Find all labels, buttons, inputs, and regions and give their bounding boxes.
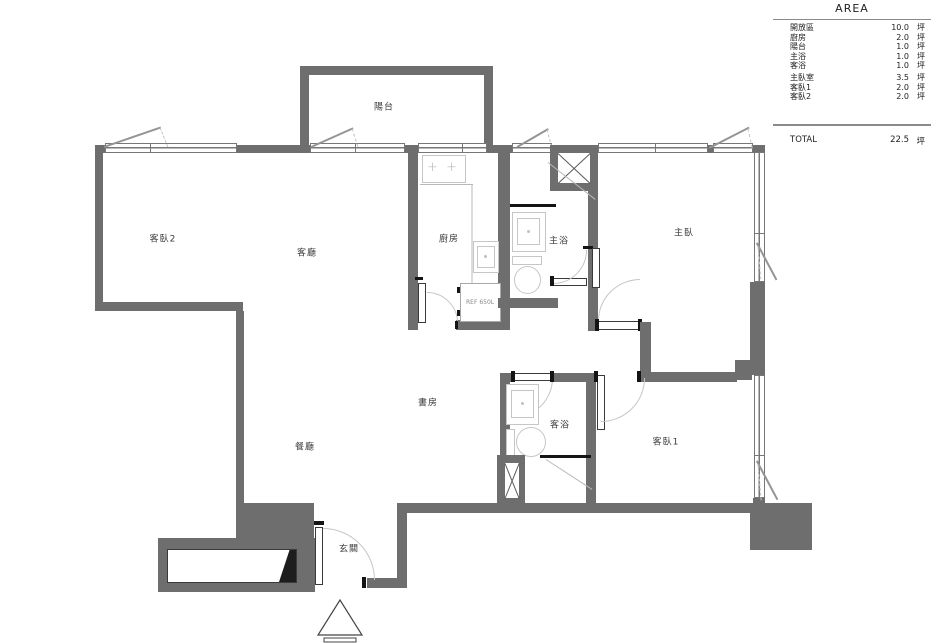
- row-value: 2.0: [873, 33, 909, 43]
- row-label: 陽台: [773, 42, 873, 52]
- area-table-title: AREA: [773, 2, 931, 15]
- table-row: 客臥12.0坪: [773, 83, 931, 93]
- wall-segment: [95, 302, 243, 311]
- wall-segment: [300, 66, 493, 75]
- area-table-rows: 開放區10.0坪 廚房2.0坪 陽台1.0坪 主浴1.0坪 客浴1.0坪 主臥室…: [773, 20, 931, 102]
- table-row: 客浴1.0坪: [773, 61, 931, 71]
- door-jamb-mark: [511, 371, 515, 382]
- wall-segment: [487, 145, 512, 153]
- row-unit: 坪: [909, 61, 931, 71]
- row-label: 客臥1: [773, 83, 873, 93]
- row-label: 主臥室: [773, 73, 873, 83]
- wall-segment: [735, 360, 752, 380]
- room-label-guest-bath: 客浴: [550, 418, 570, 431]
- window-mullion: [754, 233, 765, 234]
- door-jamb-mark: [595, 319, 599, 331]
- row-value: 2.0: [873, 83, 909, 93]
- row-unit: 坪: [909, 73, 931, 83]
- total-label: TOTAL: [773, 135, 873, 147]
- toilet-bowl: [516, 427, 546, 457]
- wall-segment: [484, 66, 493, 152]
- door-jamb-mark: [314, 521, 324, 525]
- door-swing-arc: [601, 378, 645, 422]
- room-label-living: 客廳: [297, 246, 317, 259]
- row-label: 客臥2: [773, 92, 873, 102]
- row-unit: 坪: [909, 33, 931, 43]
- door-swing-arc: [553, 250, 587, 284]
- fixture-mark: [457, 310, 460, 316]
- door-swing-arc: [598, 279, 640, 321]
- table-row: 主浴1.0坪: [773, 52, 931, 62]
- wall-block: [750, 503, 812, 550]
- sink-drain-icon: [527, 230, 530, 233]
- row-unit: 坪: [909, 23, 931, 33]
- wall-segment: [750, 282, 765, 375]
- stove-burner-icon: +: [446, 161, 457, 174]
- table-spacer: [773, 102, 931, 124]
- door-jamb-mark: [550, 276, 554, 286]
- row-unit: 坪: [909, 52, 931, 62]
- sink-drain-icon: [484, 255, 487, 258]
- window-mullion: [754, 455, 765, 456]
- room-label-study: 書房: [418, 396, 438, 409]
- room-label-master-bedroom: 主臥: [674, 226, 694, 239]
- window: [713, 143, 753, 153]
- row-value: 1.0: [873, 52, 909, 62]
- area-table: AREA 開放區10.0坪 廚房2.0坪 陽台1.0坪 主浴1.0坪 客浴1.0…: [773, 2, 931, 147]
- door-jamb-mark: [455, 321, 458, 329]
- floor-plan-canvas: AREA 開放區10.0坪 廚房2.0坪 陽台1.0坪 主浴1.0坪 客浴1.0…: [0, 0, 936, 643]
- window: [418, 143, 487, 153]
- wall-segment: [498, 298, 558, 308]
- wall-segment: [397, 503, 765, 513]
- wall-segment: [408, 320, 418, 330]
- north-arrow-icon: [314, 597, 366, 643]
- wall-segment: [586, 382, 596, 513]
- door-leaf: [418, 283, 426, 323]
- table-row: 陽台1.0坪: [773, 42, 931, 52]
- row-unit: 坪: [909, 83, 931, 93]
- wall-segment: [237, 145, 310, 153]
- door-jamb-mark: [550, 371, 554, 382]
- table-total-row: TOTAL 22.5 坪: [773, 128, 931, 147]
- wall-segment: [553, 373, 597, 382]
- door-leaf: [315, 527, 323, 585]
- window-mullion: [462, 143, 463, 153]
- row-value: 3.5: [873, 73, 909, 83]
- door-jamb-mark: [637, 371, 641, 382]
- window: [105, 143, 237, 153]
- table-row: 開放區10.0坪: [773, 23, 931, 33]
- shoe-cabinet: [167, 549, 297, 583]
- row-unit: 坪: [909, 92, 931, 102]
- shower-partition: [510, 204, 556, 207]
- total-value: 22.5: [873, 135, 909, 147]
- window: [598, 143, 708, 153]
- row-label: 廚房: [773, 33, 873, 43]
- stove-burner-icon: +: [427, 161, 438, 174]
- table-row: 客臥22.0坪: [773, 92, 931, 102]
- room-label-kitchen: 廚房: [439, 232, 459, 245]
- row-label: 開放區: [773, 23, 873, 33]
- row-label: 主浴: [773, 52, 873, 62]
- wall-segment: [397, 503, 407, 588]
- room-label-master-bath: 主浴: [549, 234, 569, 247]
- row-value: 10.0: [873, 23, 909, 33]
- toilet-tank: [506, 429, 515, 457]
- fixture-mark: [457, 287, 460, 293]
- door-jamb-mark: [415, 277, 423, 280]
- wall-segment: [95, 153, 103, 310]
- wall-segment: [408, 153, 418, 330]
- row-value: 1.0: [873, 42, 909, 52]
- room-label-bedroom2: 客臥2: [150, 232, 177, 245]
- wall-segment: [300, 66, 309, 152]
- room-label-bedroom1: 客臥1: [653, 435, 680, 448]
- door-jamb-mark: [594, 371, 598, 382]
- toilet-tank: [512, 256, 542, 265]
- room-label-dining: 餐廳: [295, 440, 315, 453]
- wall-segment: [640, 372, 737, 382]
- wall-segment: [405, 145, 418, 153]
- door-jamb-mark: [362, 577, 366, 588]
- room-label-entry: 玄關: [339, 542, 359, 555]
- toilet-bowl: [514, 266, 541, 294]
- sink-drain-icon: [521, 402, 524, 405]
- counter-edge: [420, 184, 473, 185]
- door-leaf: [598, 321, 640, 330]
- window-mullion: [655, 143, 656, 153]
- shower-partition: [540, 455, 591, 458]
- row-value: 2.0: [873, 92, 909, 102]
- wall-segment: [236, 311, 244, 505]
- table-row: 廚房2.0坪: [773, 33, 931, 43]
- window-mullion: [150, 143, 151, 153]
- row-value: 1.0: [873, 61, 909, 71]
- refrigerator-label: REF 650L: [466, 299, 494, 306]
- room-label-balcony: 陽台: [374, 100, 394, 113]
- table-row: 主臥室3.5坪: [773, 73, 931, 83]
- total-unit: 坪: [909, 135, 931, 147]
- row-unit: 坪: [909, 42, 931, 52]
- door-swing-arc: [427, 292, 458, 323]
- row-label: 客浴: [773, 61, 873, 71]
